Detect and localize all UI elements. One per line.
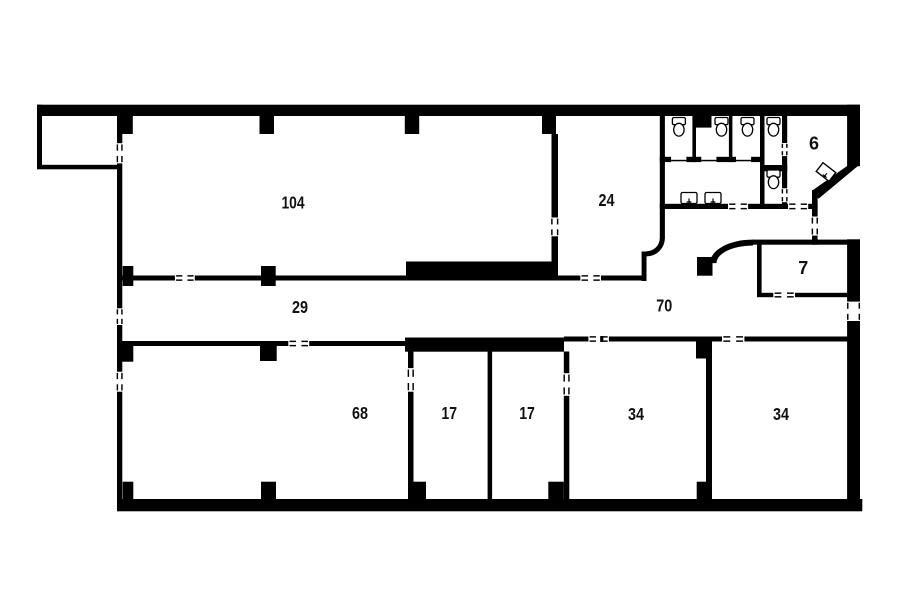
svg-text:29: 29 (292, 298, 308, 318)
svg-text:17: 17 (441, 403, 457, 423)
svg-text:7: 7 (798, 258, 808, 278)
svg-text:17: 17 (519, 403, 535, 423)
svg-text:70: 70 (656, 296, 672, 316)
svg-text:24: 24 (598, 190, 614, 210)
svg-text:34: 34 (628, 405, 644, 425)
svg-text:6: 6 (809, 134, 819, 154)
svg-text:68: 68 (352, 404, 368, 424)
svg-text:104: 104 (281, 193, 304, 213)
svg-text:34: 34 (773, 405, 789, 425)
